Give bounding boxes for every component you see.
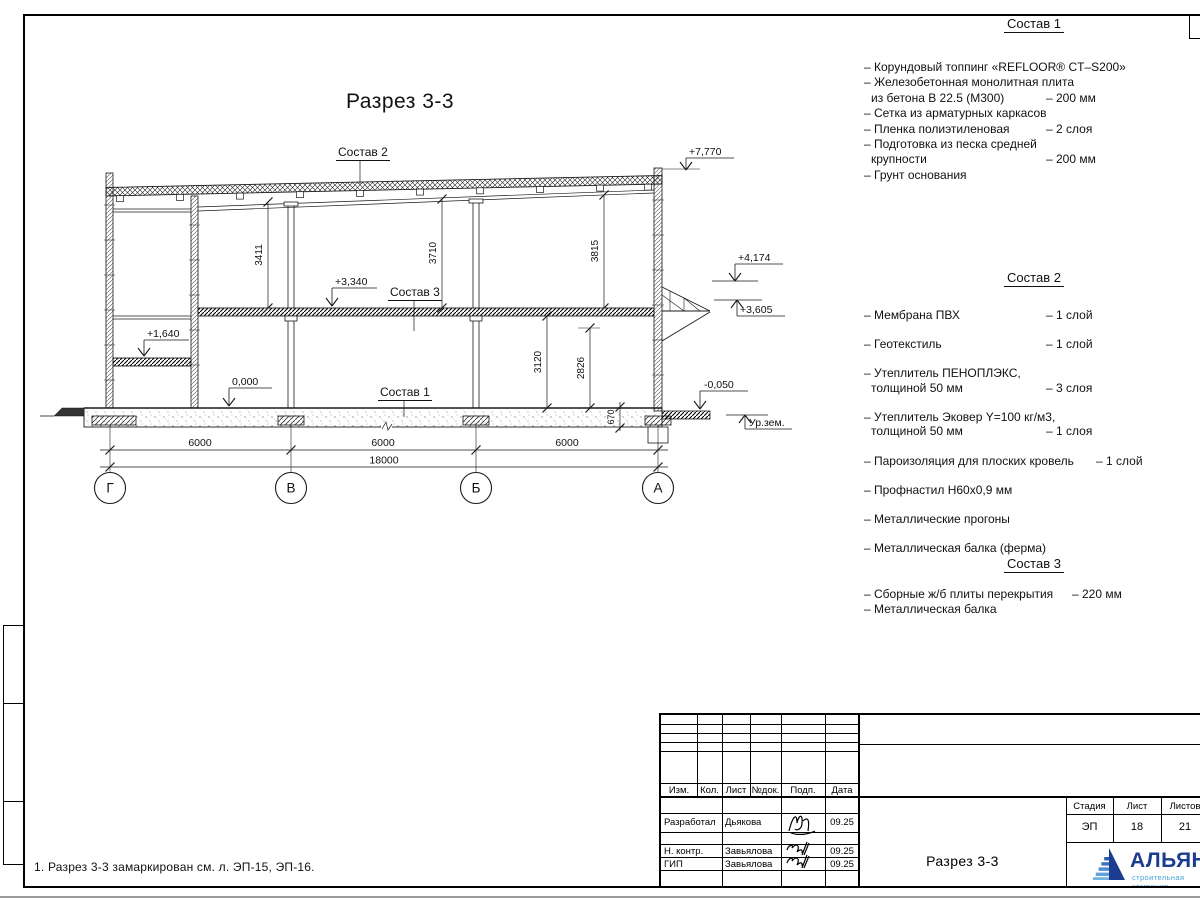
material-row: – Сборные ж/б плиты перекрытия– 220 мм bbox=[864, 587, 1200, 602]
material-row: – Сетка из арматурных каркасов bbox=[864, 106, 1200, 121]
svg-text:+7,770: +7,770 bbox=[689, 146, 722, 158]
svg-text:А: А bbox=[653, 481, 662, 496]
signature bbox=[783, 809, 823, 835]
doc-title: Разрез 3-3 bbox=[859, 853, 1066, 869]
material-text: – Металлическая балка (ферма) bbox=[864, 541, 1046, 555]
svg-text:-0,050: -0,050 bbox=[704, 379, 734, 391]
stadia-value: ЭП bbox=[1066, 821, 1113, 833]
inner-wall bbox=[191, 196, 198, 408]
level-mark-mezzanine: +1,640 bbox=[138, 328, 189, 356]
material-list-sostav-1: Состав 1 – Корундовый топпинг «REFLOOR® … bbox=[864, 16, 1200, 183]
svg-text:6000: 6000 bbox=[371, 437, 395, 449]
company-logo: АЛЬЯНС строительная компания bbox=[1066, 842, 1200, 886]
material-list-sostav-2: Состав 2 – Мембрана ПВХ– 1 слой– Геотекс… bbox=[864, 270, 1200, 570]
mezzanine-slab bbox=[113, 358, 191, 366]
staff-role: Н. контр. bbox=[664, 846, 703, 857]
col-dok: №док. bbox=[750, 785, 781, 796]
right-wall bbox=[654, 168, 662, 411]
axis-bubbles: Г В Б А bbox=[95, 473, 674, 504]
level-mark-ground: Ур.зем. bbox=[739, 415, 792, 429]
level-mark-canopy-edge: +3,605 bbox=[714, 300, 785, 316]
material-item: – Пароизоляция для плоских кровель– 1 сл… bbox=[864, 454, 1200, 469]
material-row: – Корундовый топпинг «REFLOOR® CT–S200» bbox=[864, 60, 1200, 75]
material-text: – Мембрана ПВХ bbox=[864, 308, 960, 322]
logo-name: АЛЬЯНС bbox=[1130, 849, 1200, 873]
sheet-note: 1. Разрез 3-3 замаркирован см. л. ЭП-15,… bbox=[34, 860, 315, 874]
staff-date: 09.25 bbox=[825, 817, 859, 828]
material-item: – Грунт основания bbox=[864, 168, 1200, 183]
left-wall bbox=[106, 173, 113, 408]
staff-date: 09.25 bbox=[825, 846, 859, 857]
material-item: – Подготовка из песка среднейкрупности– … bbox=[864, 137, 1200, 168]
logo-subtitle: строительная компания bbox=[1132, 873, 1200, 886]
material-row: – Пленка полиэтиленовая– 2 слоя bbox=[864, 122, 1200, 137]
material-row: толщиной 50 мм– 1 слоя bbox=[864, 424, 1200, 439]
material-item: – Профнастил Н60х0,9 мм bbox=[864, 483, 1200, 498]
svg-text:3815: 3815 bbox=[590, 239, 601, 262]
list-value: 18 bbox=[1113, 821, 1161, 833]
col-podp: Подп. bbox=[781, 785, 825, 796]
material-text: – Утеплитель ПЕНОПЛЭКС, bbox=[864, 366, 1021, 380]
material-list-sostav-3: Состав 3 – Сборные ж/б плиты перекрытия–… bbox=[864, 556, 1200, 616]
material-value: – 3 слоя bbox=[1046, 381, 1092, 396]
material-item: – Металлические прогоны bbox=[864, 512, 1200, 527]
svg-text:Б: Б bbox=[472, 481, 481, 496]
material-text: – Сетка из арматурных каркасов bbox=[864, 106, 1047, 120]
title-block: Изм. Кол. Лист №док. Подп. Дата Разработ… bbox=[659, 713, 1200, 888]
canopy-truss bbox=[662, 287, 710, 341]
svg-text:+3,340: +3,340 bbox=[335, 276, 368, 288]
material-item: – Утеплитель ПЕНОПЛЭКС,толщиной 50 мм– 3… bbox=[864, 366, 1200, 395]
col-izm: Изм. bbox=[661, 785, 697, 796]
svg-text:2826: 2826 bbox=[576, 356, 587, 379]
staff-role: Разработал bbox=[664, 817, 716, 828]
material-item: – Корундовый топпинг «REFLOOR® CT–S200» bbox=[864, 60, 1200, 75]
staff-name: Завьялова bbox=[725, 846, 772, 857]
list-items: – Корундовый топпинг «REFLOOR® CT–S200»–… bbox=[864, 60, 1200, 183]
side-stamp-divider bbox=[4, 703, 24, 704]
material-value: – 200 мм bbox=[1046, 152, 1096, 167]
staff-name: Завьялова bbox=[725, 859, 772, 870]
material-text: – Железобетонная монолитная плита bbox=[864, 75, 1074, 89]
lists-value: 21 bbox=[1161, 821, 1200, 833]
ref-label-sostav-3: Состав 3 bbox=[388, 285, 442, 301]
svg-text:+3,605: +3,605 bbox=[740, 304, 773, 316]
material-row: – Мембрана ПВХ– 1 слой bbox=[864, 308, 1200, 323]
material-row: крупности– 200 мм bbox=[864, 152, 1200, 167]
material-item: – Металлическая балка bbox=[864, 602, 1200, 617]
material-text: – Корундовый топпинг «REFLOOR® CT–S200» bbox=[864, 60, 1126, 74]
material-text: – Геотекстиль bbox=[864, 337, 942, 351]
material-row: – Металлические прогоны bbox=[864, 512, 1200, 527]
signature bbox=[783, 854, 823, 869]
material-row: – Пароизоляция для плоских кровель– 1 сл… bbox=[864, 454, 1200, 469]
material-text: толщиной 50 мм bbox=[871, 424, 963, 438]
material-text: – Сборные ж/б плиты перекрытия bbox=[864, 587, 1053, 601]
col-data: Дата bbox=[825, 785, 859, 796]
drawing-sheet: { "sheet": { "drawing_title": "Разрез 3-… bbox=[0, 0, 1200, 900]
level-mark-slab: +3,340 bbox=[326, 276, 377, 306]
material-item: – Утеплитель Эковер Y=100 кг/м3,толщиной… bbox=[864, 410, 1200, 439]
material-row: толщиной 50 мм– 3 слоя bbox=[864, 381, 1200, 396]
material-row: – Профнастил Н60х0,9 мм bbox=[864, 483, 1200, 498]
drawing-title: Разрез 3-3 bbox=[346, 90, 454, 114]
material-row: – Железобетонная монолитная плита bbox=[864, 75, 1200, 90]
svg-text:Г: Г bbox=[106, 481, 114, 496]
staff-role: ГИП bbox=[664, 859, 683, 870]
material-text: – Подготовка из песка средней bbox=[864, 137, 1037, 151]
ref-label-sostav-1: Состав 1 bbox=[378, 385, 432, 401]
material-item: – Пленка полиэтиленовая– 2 слоя bbox=[864, 122, 1200, 137]
material-value: – 200 мм bbox=[1046, 91, 1096, 106]
svg-text:0,000: 0,000 bbox=[232, 376, 258, 388]
svg-text:670: 670 bbox=[606, 409, 616, 424]
material-row: – Металлическая балка (ферма) bbox=[864, 541, 1200, 556]
material-row: – Металлическая балка bbox=[864, 602, 1200, 617]
level-mark-roof: +7,770 bbox=[680, 146, 734, 170]
material-text: – Пароизоляция для плоских кровель bbox=[864, 454, 1074, 468]
list-label: Лист bbox=[1113, 801, 1161, 812]
svg-text:+4,174: +4,174 bbox=[738, 252, 771, 264]
level-mark-canopy-top: +4,174 bbox=[712, 252, 783, 281]
material-text: – Пленка полиэтиленовая bbox=[864, 122, 1010, 136]
col-kol: Кол. bbox=[697, 785, 722, 796]
col-list: Лист bbox=[722, 785, 750, 796]
material-value: – 1 слой bbox=[1046, 308, 1093, 323]
material-text: толщиной 50 мм bbox=[871, 381, 963, 395]
ramp bbox=[54, 408, 84, 416]
svg-text:3411: 3411 bbox=[254, 244, 265, 266]
logo-triangle-icon bbox=[1092, 847, 1126, 881]
lists-label: Листов bbox=[1161, 801, 1200, 812]
material-row: – Геотекстиль– 1 слой bbox=[864, 337, 1200, 352]
section-drawing: 3411 3710 3815 3120 2826 670 +7,770 +4,1… bbox=[0, 0, 820, 520]
exterior-slab bbox=[662, 411, 710, 419]
paper-edge bbox=[0, 896, 1200, 898]
material-row: – Утеплитель ПЕНОПЛЭКС, bbox=[864, 366, 1200, 381]
svg-text:Ур.зем.: Ур.зем. bbox=[749, 417, 785, 429]
material-item: – Железобетонная монолитная плитаиз бето… bbox=[864, 75, 1200, 106]
staff-name: Дьякова bbox=[725, 817, 761, 828]
list-title: Состав 2 bbox=[1004, 270, 1064, 287]
staff-date: 09.25 bbox=[825, 859, 859, 870]
stadia-label: Стадия bbox=[1066, 801, 1113, 812]
material-value: – 1 слой bbox=[1096, 454, 1143, 469]
svg-text:+1,640: +1,640 bbox=[147, 328, 180, 340]
list-title: Состав 3 bbox=[1004, 556, 1064, 573]
material-value: – 2 слоя bbox=[1046, 122, 1092, 137]
material-row: – Утеплитель Эковер Y=100 кг/м3, bbox=[864, 410, 1200, 425]
columns bbox=[284, 199, 483, 408]
material-item: – Мембрана ПВХ– 1 слой bbox=[864, 308, 1200, 323]
dimension-labels: 6000 6000 6000 18000 bbox=[188, 437, 579, 467]
svg-text:6000: 6000 bbox=[188, 437, 212, 449]
level-mark-entry: -0,050 bbox=[694, 379, 748, 409]
side-stamp bbox=[3, 625, 25, 865]
svg-text:18000: 18000 bbox=[369, 455, 398, 467]
material-text: – Металлические прогоны bbox=[864, 512, 1010, 526]
material-text: – Грунт основания bbox=[864, 168, 967, 182]
material-text: крупности bbox=[871, 152, 927, 166]
material-value: – 1 слоя bbox=[1046, 424, 1092, 439]
material-row: – Подготовка из песка средней bbox=[864, 137, 1200, 152]
material-value: – 220 мм bbox=[1072, 587, 1122, 602]
material-text: – Профнастил Н60х0,9 мм bbox=[864, 483, 1012, 497]
material-text: – Металлическая балка bbox=[864, 602, 997, 616]
level-mark-floor: 0,000 bbox=[223, 376, 272, 406]
side-stamp-divider bbox=[4, 801, 24, 802]
material-text: из бетона В 22.5 (М300) bbox=[871, 91, 1004, 105]
material-item: – Сетка из арматурных каркасов bbox=[864, 106, 1200, 121]
material-text: – Утеплитель Эковер Y=100 кг/м3, bbox=[864, 410, 1055, 424]
material-row: из бетона В 22.5 (М300)– 200 мм bbox=[864, 91, 1200, 106]
ref-label-sostav-2: Состав 2 bbox=[336, 145, 390, 161]
vertical-dimension-labels: 3411 3710 3815 3120 2826 670 bbox=[254, 239, 616, 424]
svg-text:В: В bbox=[286, 481, 295, 496]
svg-text:6000: 6000 bbox=[555, 437, 579, 449]
svg-text:3120: 3120 bbox=[533, 350, 544, 373]
material-item: – Геотекстиль– 1 слой bbox=[864, 337, 1200, 352]
svg-text:3710: 3710 bbox=[428, 241, 439, 264]
list-title: Состав 1 bbox=[1004, 16, 1064, 33]
material-value: – 1 слой bbox=[1046, 337, 1093, 352]
list-items: – Сборные ж/б плиты перекрытия– 220 мм– … bbox=[864, 587, 1200, 616]
list-items: – Мембрана ПВХ– 1 слой– Геотекстиль– 1 с… bbox=[864, 308, 1200, 555]
material-item: – Металлическая балка (ферма) bbox=[864, 541, 1200, 556]
material-item: – Сборные ж/б плиты перекрытия– 220 мм bbox=[864, 587, 1200, 602]
material-row: – Грунт основания bbox=[864, 168, 1200, 183]
ground-slab bbox=[84, 408, 662, 427]
